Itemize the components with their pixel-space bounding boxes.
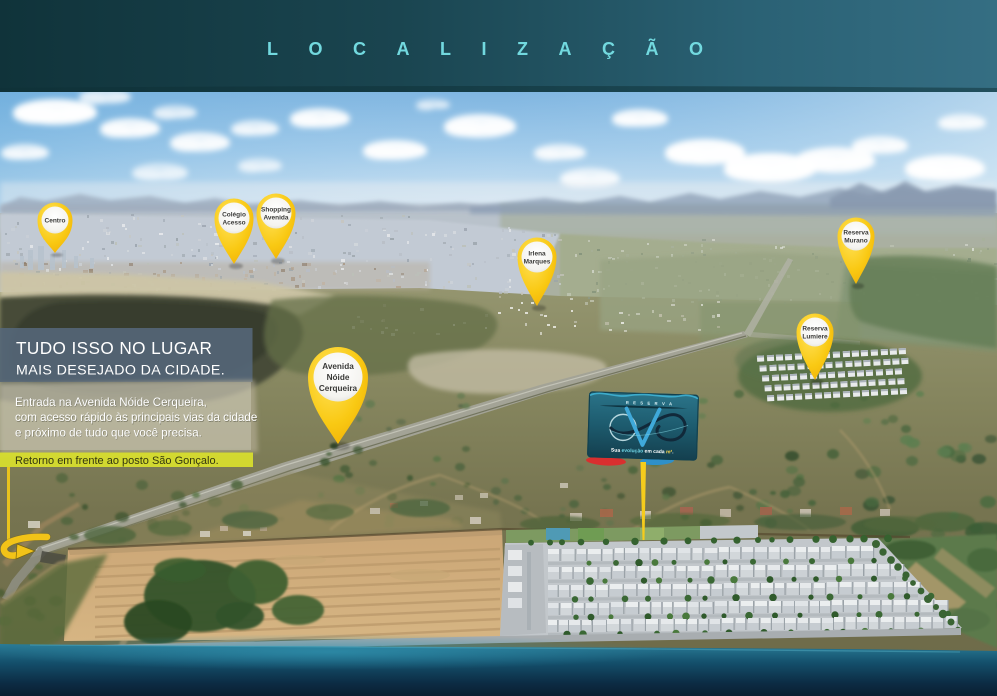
svg-text:Colégio: Colégio xyxy=(222,211,246,218)
svg-text:Cerqueira: Cerqueira xyxy=(319,384,358,393)
svg-text:LOCALIZAÇÃO: LOCALIZAÇÃO xyxy=(267,38,733,59)
svg-text:Murano: Murano xyxy=(844,237,868,244)
svg-text:Retorno em frente ao posto São: Retorno em frente ao posto São Gonçalo. xyxy=(15,455,219,467)
svg-text:Marques: Marques xyxy=(524,258,551,265)
svg-text:Nóide: Nóide xyxy=(327,373,350,382)
svg-text:TUDO ISSO NO LUGAR: TUDO ISSO NO LUGAR xyxy=(16,338,212,358)
svg-text:Entrada na Avenida Nóide Cerqu: Entrada na Avenida Nóide Cerqueira, xyxy=(15,396,207,409)
svg-text:Reserva: Reserva xyxy=(802,325,828,332)
svg-text:com acesso rápido às principai: com acesso rápido às principais vias da … xyxy=(15,411,257,424)
svg-text:Centro: Centro xyxy=(45,217,66,224)
svg-text:Reserva: Reserva xyxy=(843,229,869,236)
svg-text:Acesso: Acesso xyxy=(222,219,245,226)
svg-text:Shopping: Shopping xyxy=(261,206,291,213)
svg-text:Irlena: Irlena xyxy=(528,250,546,257)
svg-text:Lumiere: Lumiere xyxy=(802,333,828,340)
svg-text:Avenida: Avenida xyxy=(322,362,354,371)
svg-text:e próximo de tudo que você pre: e próximo de tudo que você precisa. xyxy=(15,426,202,439)
svg-text:Avenida: Avenida xyxy=(263,214,288,221)
svg-text:MAIS DESEJADO DA CIDADE.: MAIS DESEJADO DA CIDADE. xyxy=(16,363,225,379)
